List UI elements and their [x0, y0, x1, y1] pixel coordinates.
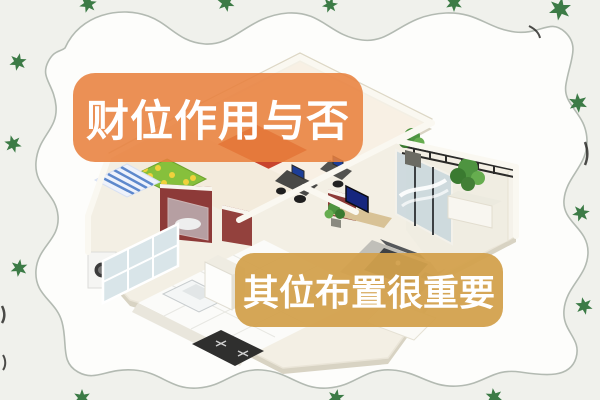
headline-banner-top: 财位作用与否	[73, 73, 363, 162]
office-chair	[333, 181, 344, 188]
headline-bottom-text: 其位布置很重要	[243, 264, 495, 316]
office-chair	[276, 188, 286, 195]
poster: 财位作用与否 其位布置很重要	[0, 0, 600, 400]
headline-top-text: 财位作用与否	[86, 87, 350, 149]
floorplan-illustration	[0, 0, 600, 400]
headline-banner-bottom: 其位布置很重要	[235, 253, 503, 327]
office-chair	[294, 195, 306, 203]
